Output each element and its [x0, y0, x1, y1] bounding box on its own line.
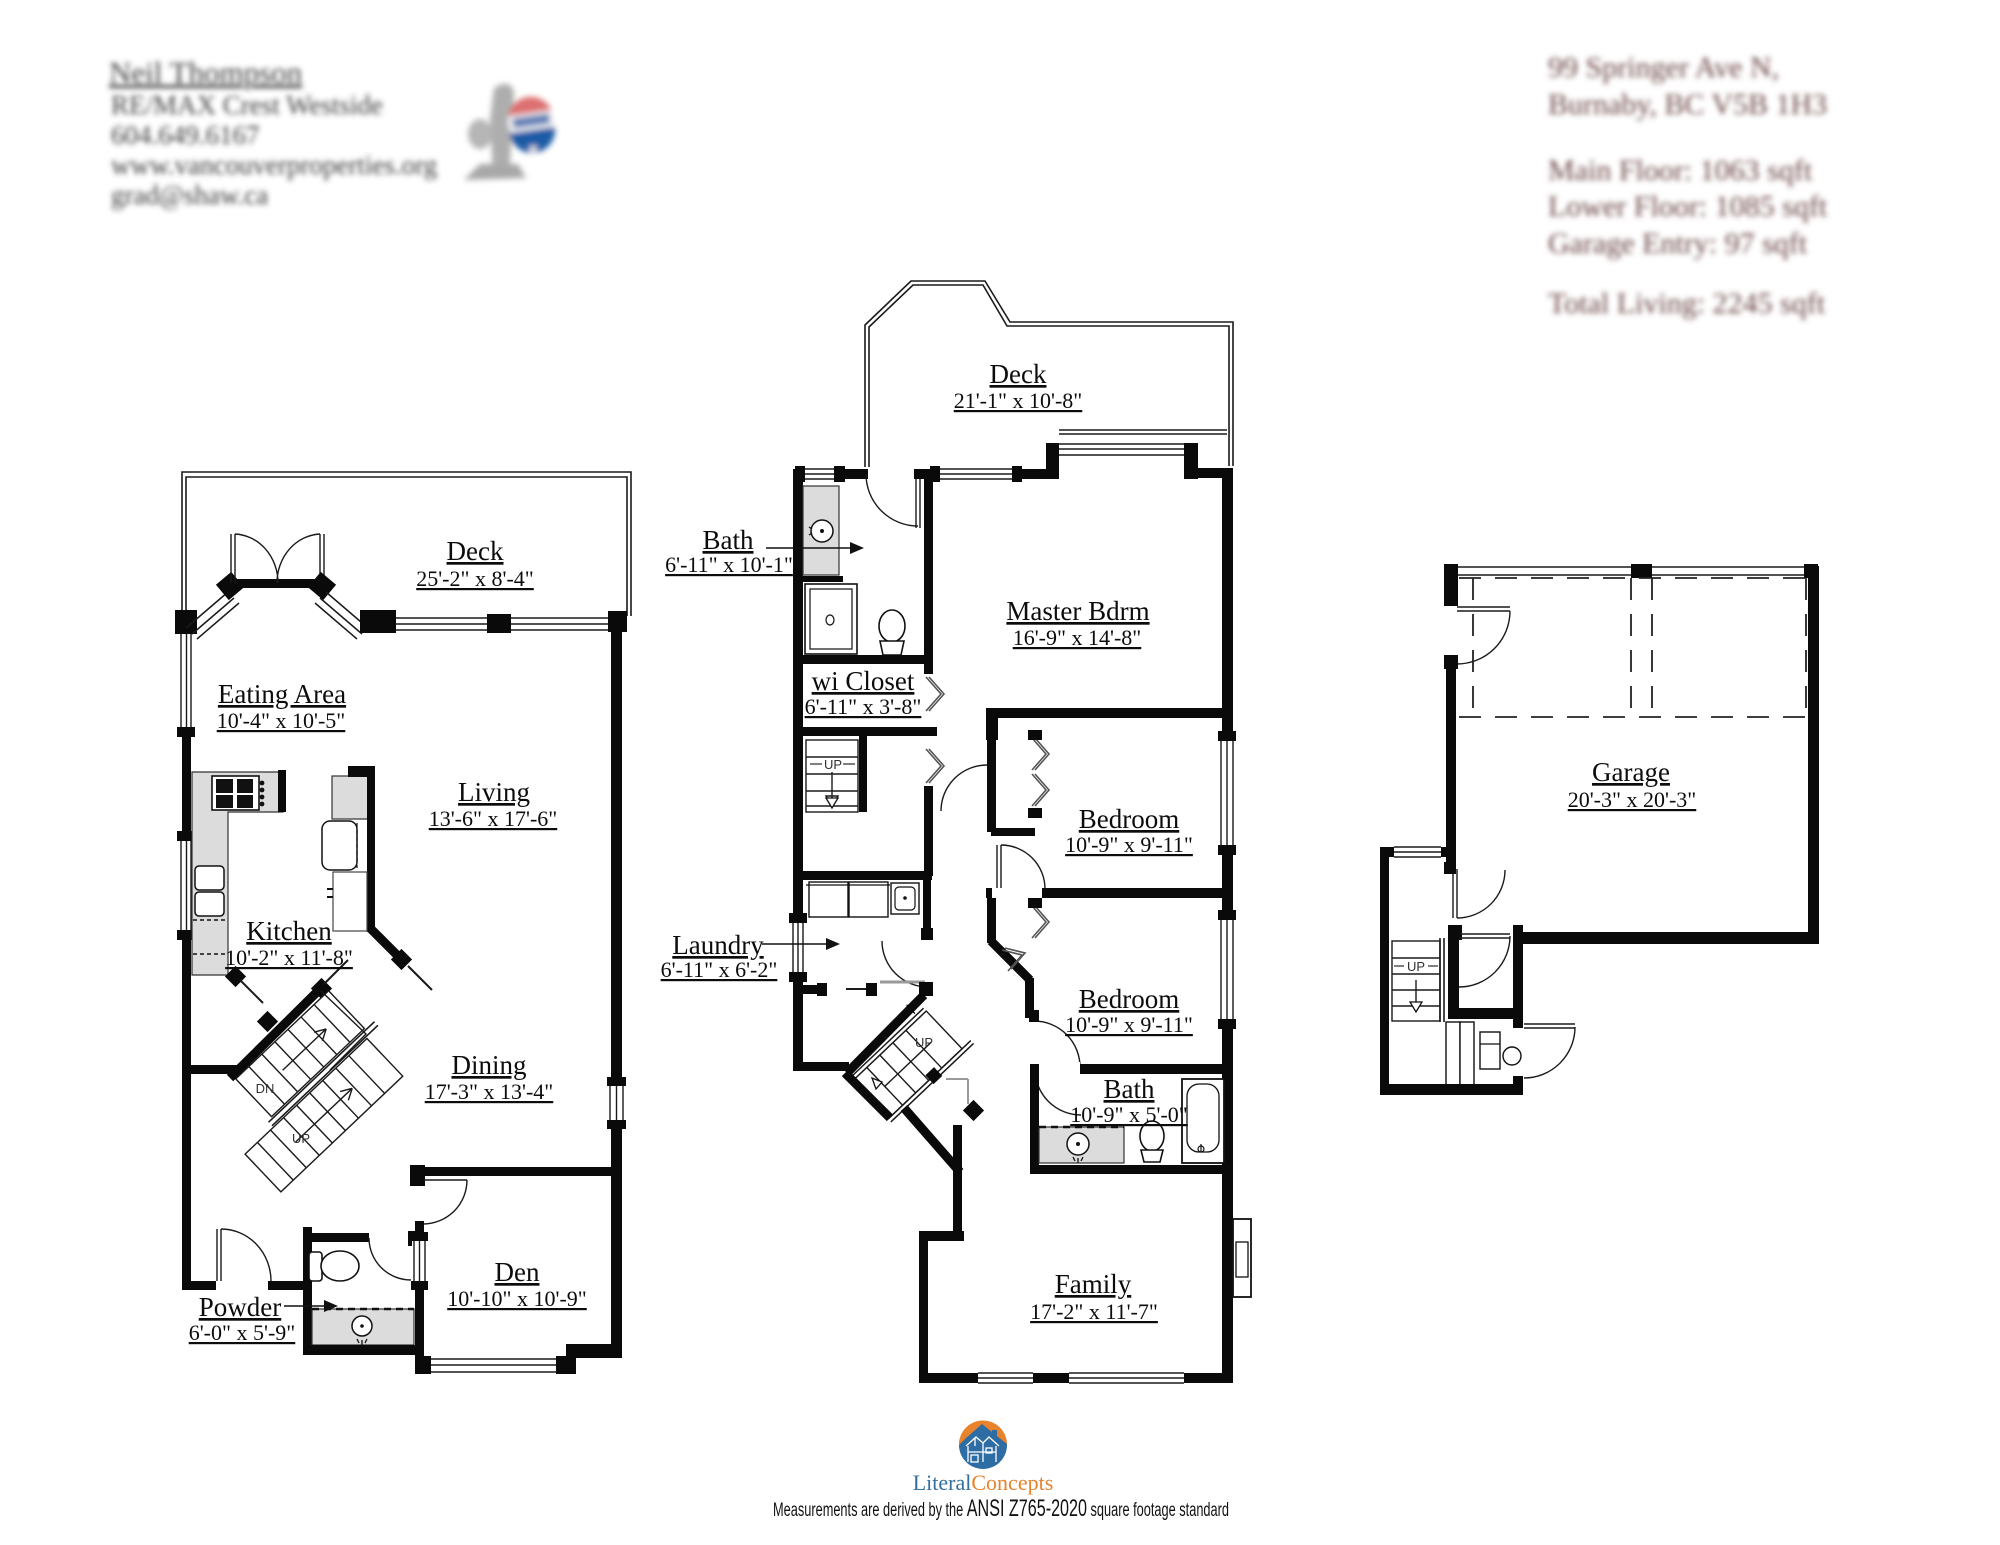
- svg-text:Den: Den: [495, 1257, 540, 1287]
- svg-text:Garage: Garage: [1592, 757, 1670, 787]
- svg-text:Deck: Deck: [447, 536, 504, 566]
- svg-text:Kitchen: Kitchen: [246, 916, 332, 946]
- svg-text:UP: UP: [1407, 959, 1425, 974]
- svg-text:www.vancouverproperties.org: www.vancouverproperties.org: [111, 150, 437, 180]
- svg-text:16'-9" x 14'-8": 16'-9" x 14'-8": [1013, 625, 1142, 650]
- svg-text:6'-11" x 3'-8": 6'-11" x 3'-8": [805, 694, 922, 719]
- svg-text:UP: UP: [292, 1131, 310, 1146]
- svg-text:RE/MAX Crest Westside: RE/MAX Crest Westside: [111, 90, 383, 120]
- svg-text:Lower Floor: 1085 sqft: Lower Floor: 1085 sqft: [1548, 190, 1828, 223]
- svg-text:6'-0" x 5'-9": 6'-0" x 5'-9": [189, 1320, 296, 1345]
- svg-text:Family: Family: [1055, 1269, 1132, 1299]
- svg-text:10'-9" x 9'-11": 10'-9" x 9'-11": [1065, 1012, 1193, 1037]
- svg-text:17'-3" x 13'-4": 17'-3" x 13'-4": [425, 1079, 554, 1104]
- svg-text:Deck: Deck: [990, 359, 1047, 389]
- svg-text:Garage Entry: 97 sqft: Garage Entry: 97 sqft: [1548, 227, 1808, 260]
- svg-text:DN: DN: [256, 1081, 275, 1096]
- svg-text:13'-6" x 17'-6": 13'-6" x 17'-6": [429, 806, 558, 831]
- svg-text:Measurements are derived by th: Measurements are derived by the ANSI Z76…: [773, 1495, 1229, 1522]
- svg-text:25'-2" x 8'-4": 25'-2" x 8'-4": [416, 566, 534, 591]
- svg-text:Living: Living: [458, 777, 530, 807]
- svg-text:99 Springer Ave N,: 99 Springer Ave N,: [1548, 51, 1779, 84]
- svg-text:604.649.6167: 604.649.6167: [111, 120, 260, 150]
- svg-text:Eating Area: Eating Area: [218, 679, 346, 709]
- svg-text:grad@shaw.ca: grad@shaw.ca: [111, 180, 268, 210]
- svg-text:Laundry: Laundry: [672, 930, 764, 960]
- svg-text:10'-4" x 10'-5": 10'-4" x 10'-5": [217, 708, 346, 733]
- svg-text:UP: UP: [824, 757, 842, 772]
- svg-text:21'-1" x 10'-8": 21'-1" x 10'-8": [954, 388, 1083, 413]
- svg-text:6'-11" x 10'-1": 6'-11" x 10'-1": [665, 552, 793, 577]
- svg-text:6'-11" x 6'-2": 6'-11" x 6'-2": [661, 957, 778, 982]
- svg-text:Dining: Dining: [451, 1050, 526, 1080]
- svg-text:Bedroom: Bedroom: [1079, 984, 1180, 1014]
- svg-text:10'-9" x 5'-0": 10'-9" x 5'-0": [1070, 1102, 1188, 1127]
- svg-text:10'-9" x 9'-11": 10'-9" x 9'-11": [1065, 832, 1193, 857]
- svg-text:Neil Thompson: Neil Thompson: [109, 55, 303, 90]
- svg-text:10'-10" x 10'-9": 10'-10" x 10'-9": [447, 1286, 587, 1311]
- svg-text:Bedroom: Bedroom: [1079, 804, 1180, 834]
- svg-text:Master Bdrm: Master Bdrm: [1006, 596, 1149, 626]
- svg-text:UP: UP: [915, 1035, 933, 1050]
- svg-text:17'-2" x 11'-7": 17'-2" x 11'-7": [1030, 1299, 1158, 1324]
- svg-text:Powder: Powder: [199, 1292, 282, 1322]
- svg-text:LiteralConcepts: LiteralConcepts: [913, 1470, 1054, 1495]
- svg-text:Total Living: 2245 sqft: Total Living: 2245 sqft: [1548, 287, 1826, 320]
- svg-text:Main Floor: 1063 sqft: Main Floor: 1063 sqft: [1548, 154, 1813, 187]
- svg-text:Burnaby, BC V5B 1H3: Burnaby, BC V5B 1H3: [1548, 88, 1827, 121]
- svg-text:wi Closet: wi Closet: [812, 666, 915, 696]
- svg-text:20'-3" x 20'-3": 20'-3" x 20'-3": [1568, 787, 1697, 812]
- svg-text:10'-2" x 11'-8": 10'-2" x 11'-8": [225, 945, 353, 970]
- svg-text:Bath: Bath: [703, 525, 754, 555]
- svg-text:Bath: Bath: [1104, 1074, 1155, 1104]
